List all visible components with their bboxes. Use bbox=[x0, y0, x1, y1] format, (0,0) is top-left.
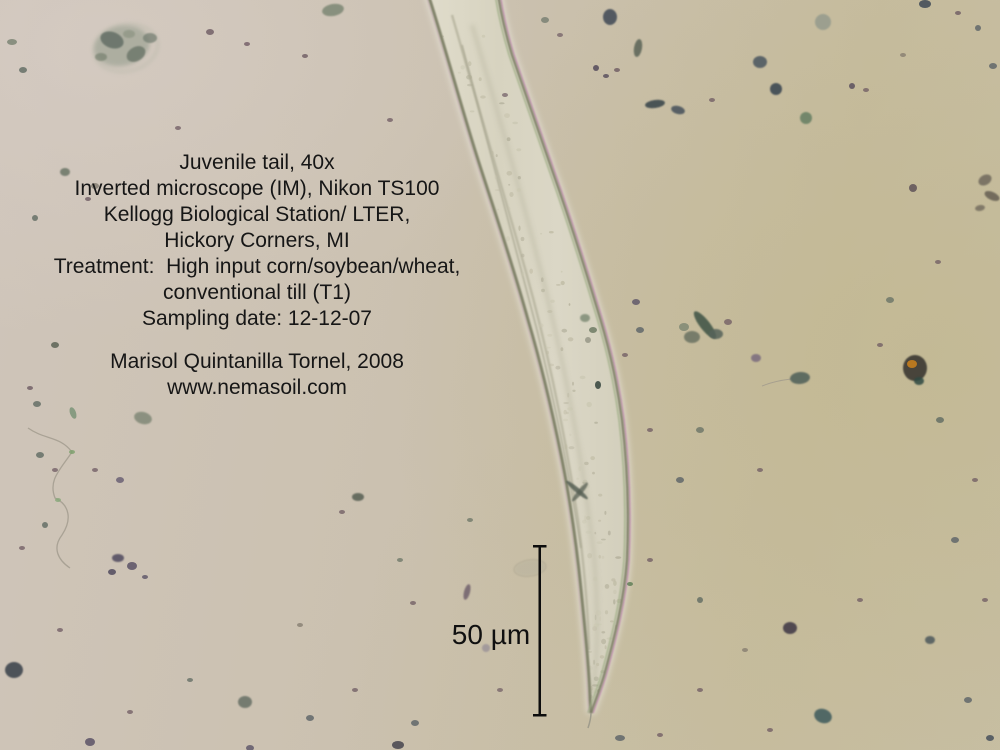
texture-dot bbox=[605, 645, 607, 649]
debris-particle bbox=[696, 427, 704, 433]
debris-particle bbox=[392, 741, 404, 749]
debris-particle bbox=[709, 329, 723, 339]
debris-particle bbox=[812, 706, 834, 725]
texture-dot bbox=[549, 231, 554, 233]
annotation-line: conventional till (T1) bbox=[17, 280, 497, 306]
debris-particle bbox=[907, 360, 917, 368]
debris-particle bbox=[903, 355, 927, 381]
texture-dot bbox=[458, 72, 461, 74]
debris-particle bbox=[42, 522, 48, 528]
texture-dot bbox=[546, 351, 549, 354]
texture-dot bbox=[600, 655, 605, 659]
debris-particle bbox=[502, 93, 508, 97]
texture-dot bbox=[482, 35, 486, 38]
debris-particle bbox=[976, 172, 993, 188]
texture-dot bbox=[569, 434, 571, 436]
debris-particle bbox=[143, 33, 157, 43]
debris-particle bbox=[697, 688, 703, 692]
debris-particle bbox=[95, 53, 107, 61]
debris-particle bbox=[589, 327, 597, 333]
texture-dot bbox=[479, 77, 482, 81]
debris-particle bbox=[857, 598, 863, 602]
debris-particle bbox=[709, 98, 715, 102]
debris-particle bbox=[51, 342, 59, 348]
texture-dot bbox=[461, 65, 465, 69]
debris-particle bbox=[244, 42, 250, 46]
texture-dot bbox=[611, 578, 615, 581]
debris-particle bbox=[467, 518, 473, 522]
annotation-line: Treatment: High input corn/soybean/wheat… bbox=[17, 254, 497, 280]
texture-dot bbox=[613, 599, 615, 604]
debris-particle bbox=[615, 735, 625, 741]
texture-dot bbox=[605, 610, 608, 614]
debris-particle bbox=[19, 546, 25, 550]
debris-particle bbox=[593, 65, 599, 71]
texture-dot bbox=[545, 347, 551, 349]
debris-particle bbox=[753, 56, 767, 68]
debris-particle bbox=[972, 478, 978, 482]
texture-dot bbox=[561, 281, 565, 285]
debris-particle bbox=[133, 410, 153, 426]
texture-dot bbox=[601, 539, 606, 541]
debris-particle bbox=[886, 297, 894, 303]
debris-particle bbox=[989, 63, 997, 69]
texture-dot bbox=[506, 236, 510, 241]
texture-dot bbox=[580, 376, 586, 380]
debris-particle bbox=[627, 582, 633, 586]
debris-particle bbox=[684, 331, 700, 343]
debris-particle bbox=[790, 371, 811, 385]
debris-particle bbox=[246, 745, 254, 750]
texture-dot bbox=[592, 472, 595, 475]
debris-particle bbox=[742, 648, 748, 652]
debris-particle bbox=[757, 468, 763, 472]
annotation-line: Hickory Corners, MI bbox=[17, 228, 497, 254]
debris-particle bbox=[7, 39, 17, 45]
debris-particle bbox=[724, 319, 732, 325]
debris-particle bbox=[636, 327, 644, 333]
debris-particle bbox=[85, 738, 95, 746]
website-line: www.nemasoil.com bbox=[17, 375, 497, 401]
debris-particle bbox=[112, 554, 124, 562]
debris-particle bbox=[955, 11, 961, 15]
texture-dot bbox=[572, 382, 574, 386]
annotation-line: Inverted microscope (IM), Nikon TS100 bbox=[17, 176, 497, 202]
annotation-line: Sampling date: 12-12-07 bbox=[17, 306, 497, 332]
debris-particle bbox=[603, 9, 617, 25]
debris-particle bbox=[815, 14, 831, 30]
debris-particle bbox=[92, 468, 98, 472]
debris-particle bbox=[975, 25, 981, 31]
debris-particle bbox=[935, 260, 941, 264]
debris-particle bbox=[975, 204, 986, 212]
debris-particle bbox=[116, 477, 124, 483]
texture-dot bbox=[587, 402, 592, 407]
texture-dot bbox=[497, 209, 499, 211]
debris-particle bbox=[951, 537, 959, 543]
texture-dot bbox=[601, 639, 606, 644]
texture-dot bbox=[608, 531, 611, 536]
texture-dot bbox=[590, 456, 595, 460]
texture-dot bbox=[561, 347, 564, 351]
nematode-tail-filament bbox=[588, 713, 591, 728]
texture-dot bbox=[468, 61, 472, 66]
debris-particle bbox=[670, 104, 686, 115]
texture-dot bbox=[568, 337, 574, 341]
debris-particle bbox=[679, 323, 689, 331]
texture-dot bbox=[594, 532, 596, 535]
texture-dot bbox=[521, 254, 524, 258]
texture-dot bbox=[540, 233, 542, 235]
texture-dot bbox=[563, 419, 568, 422]
debris-particle bbox=[751, 354, 761, 362]
texture-dot bbox=[561, 271, 563, 273]
debris-particle bbox=[614, 68, 620, 72]
debris-particle bbox=[986, 735, 994, 741]
debris-particle bbox=[632, 299, 640, 305]
debris-particle bbox=[302, 54, 308, 58]
texture-dot bbox=[605, 584, 610, 589]
texture-dot bbox=[565, 444, 568, 449]
debris-particle bbox=[909, 184, 917, 192]
texture-dot bbox=[596, 623, 602, 625]
debris-particle bbox=[557, 33, 563, 37]
texture-dot bbox=[564, 410, 567, 415]
debris-particle bbox=[238, 696, 252, 708]
texture-dot bbox=[586, 531, 592, 534]
texture-dot bbox=[509, 207, 511, 210]
debris-particle bbox=[339, 510, 345, 514]
texture-dot bbox=[569, 303, 571, 306]
texture-dot bbox=[507, 171, 513, 176]
debris-particle bbox=[580, 314, 590, 322]
debris-particle bbox=[647, 558, 653, 562]
texture-dot bbox=[596, 665, 598, 668]
debris-particle bbox=[877, 343, 883, 347]
texture-dot bbox=[547, 334, 552, 337]
debris-particle bbox=[657, 733, 663, 737]
texture-dot bbox=[615, 556, 621, 559]
texture-dot bbox=[602, 556, 605, 559]
debris-particle bbox=[783, 622, 797, 634]
texture-dot bbox=[470, 110, 475, 112]
texture-dot bbox=[569, 446, 575, 449]
texture-dot bbox=[550, 300, 554, 303]
debris-particle bbox=[5, 662, 23, 678]
texture-dot bbox=[508, 184, 510, 186]
scale-bar-bottom-cap bbox=[533, 714, 547, 717]
texture-dot bbox=[567, 407, 573, 410]
texture-dot bbox=[539, 323, 544, 327]
debris-particle bbox=[108, 569, 116, 575]
debris-particle bbox=[352, 688, 358, 692]
debris-particle bbox=[321, 2, 345, 18]
texture-dot bbox=[504, 113, 510, 118]
debris-particle bbox=[497, 688, 503, 692]
debris-particle bbox=[964, 697, 972, 703]
debris-particle bbox=[622, 353, 628, 357]
debris-particle bbox=[603, 74, 609, 78]
debris-particle bbox=[55, 498, 61, 502]
debris-particle bbox=[36, 452, 44, 458]
debris-particle bbox=[770, 83, 782, 95]
debris-particle bbox=[936, 417, 944, 423]
debris-particle bbox=[925, 636, 935, 644]
texture-dot bbox=[516, 148, 521, 151]
texture-dot bbox=[604, 511, 606, 515]
debris-particle bbox=[175, 126, 181, 130]
debris-particle bbox=[127, 562, 137, 570]
debris-particle bbox=[410, 601, 416, 605]
texture-dot bbox=[587, 553, 592, 558]
texture-dot bbox=[599, 555, 601, 559]
texture-dot bbox=[521, 237, 525, 241]
texture-dot bbox=[517, 188, 521, 191]
debris-particle bbox=[19, 67, 27, 73]
texture-dot bbox=[598, 520, 601, 522]
debris-particle bbox=[697, 597, 703, 603]
debris-particle bbox=[914, 377, 924, 385]
texture-dot bbox=[518, 226, 520, 231]
annotation-line: Kellogg Biological Station/ LTER, bbox=[17, 202, 497, 228]
debris-particle bbox=[595, 381, 601, 389]
debris-particle bbox=[52, 468, 58, 472]
texture-dot bbox=[529, 269, 533, 274]
texture-dot bbox=[594, 422, 598, 424]
texture-dot bbox=[595, 615, 597, 621]
micrograph: Juvenile tail, 40x Inverted microscope (… bbox=[0, 0, 1000, 750]
texture-dot bbox=[555, 366, 560, 370]
annotation-line: Juvenile tail, 40x bbox=[17, 150, 497, 176]
texture-dot bbox=[596, 610, 602, 615]
credit-line: Marisol Quintanilla Tornel, 2008 bbox=[17, 349, 497, 375]
debris-particle bbox=[142, 575, 148, 579]
texture-dot bbox=[582, 520, 587, 524]
texture-dot bbox=[578, 466, 581, 471]
debris-particle bbox=[127, 710, 133, 714]
texture-dot bbox=[522, 272, 524, 277]
annotation-text: Juvenile tail, 40x Inverted microscope (… bbox=[17, 150, 497, 332]
texture-dot bbox=[509, 192, 513, 197]
debris-particle bbox=[632, 38, 643, 57]
debris-particle bbox=[919, 0, 931, 8]
texture-dot bbox=[480, 95, 486, 98]
texture-dot bbox=[507, 137, 511, 141]
texture-dot bbox=[613, 590, 616, 594]
texture-dot bbox=[593, 660, 595, 665]
texture-dot bbox=[567, 393, 569, 398]
texture-dot bbox=[541, 289, 545, 292]
texture-dot bbox=[599, 616, 601, 621]
debris-particle bbox=[585, 337, 591, 343]
texture-dot bbox=[562, 329, 568, 333]
debris-particle bbox=[57, 628, 63, 632]
texture-dot bbox=[586, 516, 590, 520]
debris-particle bbox=[387, 118, 393, 122]
texture-dot bbox=[576, 478, 579, 480]
debris-particle bbox=[645, 99, 666, 110]
debris-particle bbox=[68, 406, 78, 419]
scale-bar-label: 50 µm bbox=[448, 619, 534, 651]
texture-dot bbox=[594, 677, 599, 682]
texture-dot bbox=[467, 84, 473, 87]
texture-dot bbox=[597, 541, 603, 544]
texture-dot bbox=[566, 412, 569, 414]
texture-dot bbox=[549, 364, 554, 367]
texture-dot bbox=[593, 577, 598, 581]
texture-dot bbox=[556, 284, 561, 286]
debris-particle bbox=[206, 29, 214, 35]
debris-particle bbox=[462, 583, 472, 600]
debris-particle bbox=[411, 720, 419, 726]
debris-particle bbox=[33, 401, 41, 407]
debris-particle bbox=[297, 623, 303, 627]
debris-particle bbox=[983, 189, 1000, 203]
texture-dot bbox=[563, 402, 569, 404]
scale-bar-top-cap bbox=[533, 545, 547, 548]
debris-particle bbox=[676, 477, 684, 483]
texture-dot bbox=[572, 390, 575, 392]
debris-particle bbox=[800, 112, 812, 124]
debris-particle bbox=[849, 83, 855, 89]
debris-particle bbox=[541, 17, 549, 23]
texture-dot bbox=[466, 75, 472, 80]
texture-dot bbox=[541, 277, 544, 282]
debris-particle bbox=[187, 678, 193, 682]
texture-dot bbox=[518, 176, 521, 179]
texture-dot bbox=[601, 631, 605, 633]
scale-bar-line bbox=[539, 546, 542, 716]
debris-particle bbox=[306, 715, 314, 721]
debris-particle bbox=[69, 450, 75, 454]
debris-particle bbox=[900, 53, 906, 57]
debris-particle bbox=[982, 598, 988, 602]
texture-dot bbox=[547, 310, 552, 313]
debris-particle bbox=[647, 428, 653, 432]
texture-dot bbox=[512, 122, 518, 125]
debris-particle bbox=[123, 30, 135, 38]
texture-dot bbox=[499, 102, 505, 104]
debris-particle bbox=[863, 88, 869, 92]
credit-text: Marisol Quintanilla Tornel, 2008 www.nem… bbox=[17, 349, 497, 401]
texture-dot bbox=[610, 620, 614, 622]
texture-dot bbox=[598, 494, 602, 497]
debris-particle bbox=[397, 558, 403, 562]
debris-particle bbox=[767, 728, 773, 732]
texture-dot bbox=[584, 462, 589, 465]
debris-particle bbox=[352, 493, 364, 501]
